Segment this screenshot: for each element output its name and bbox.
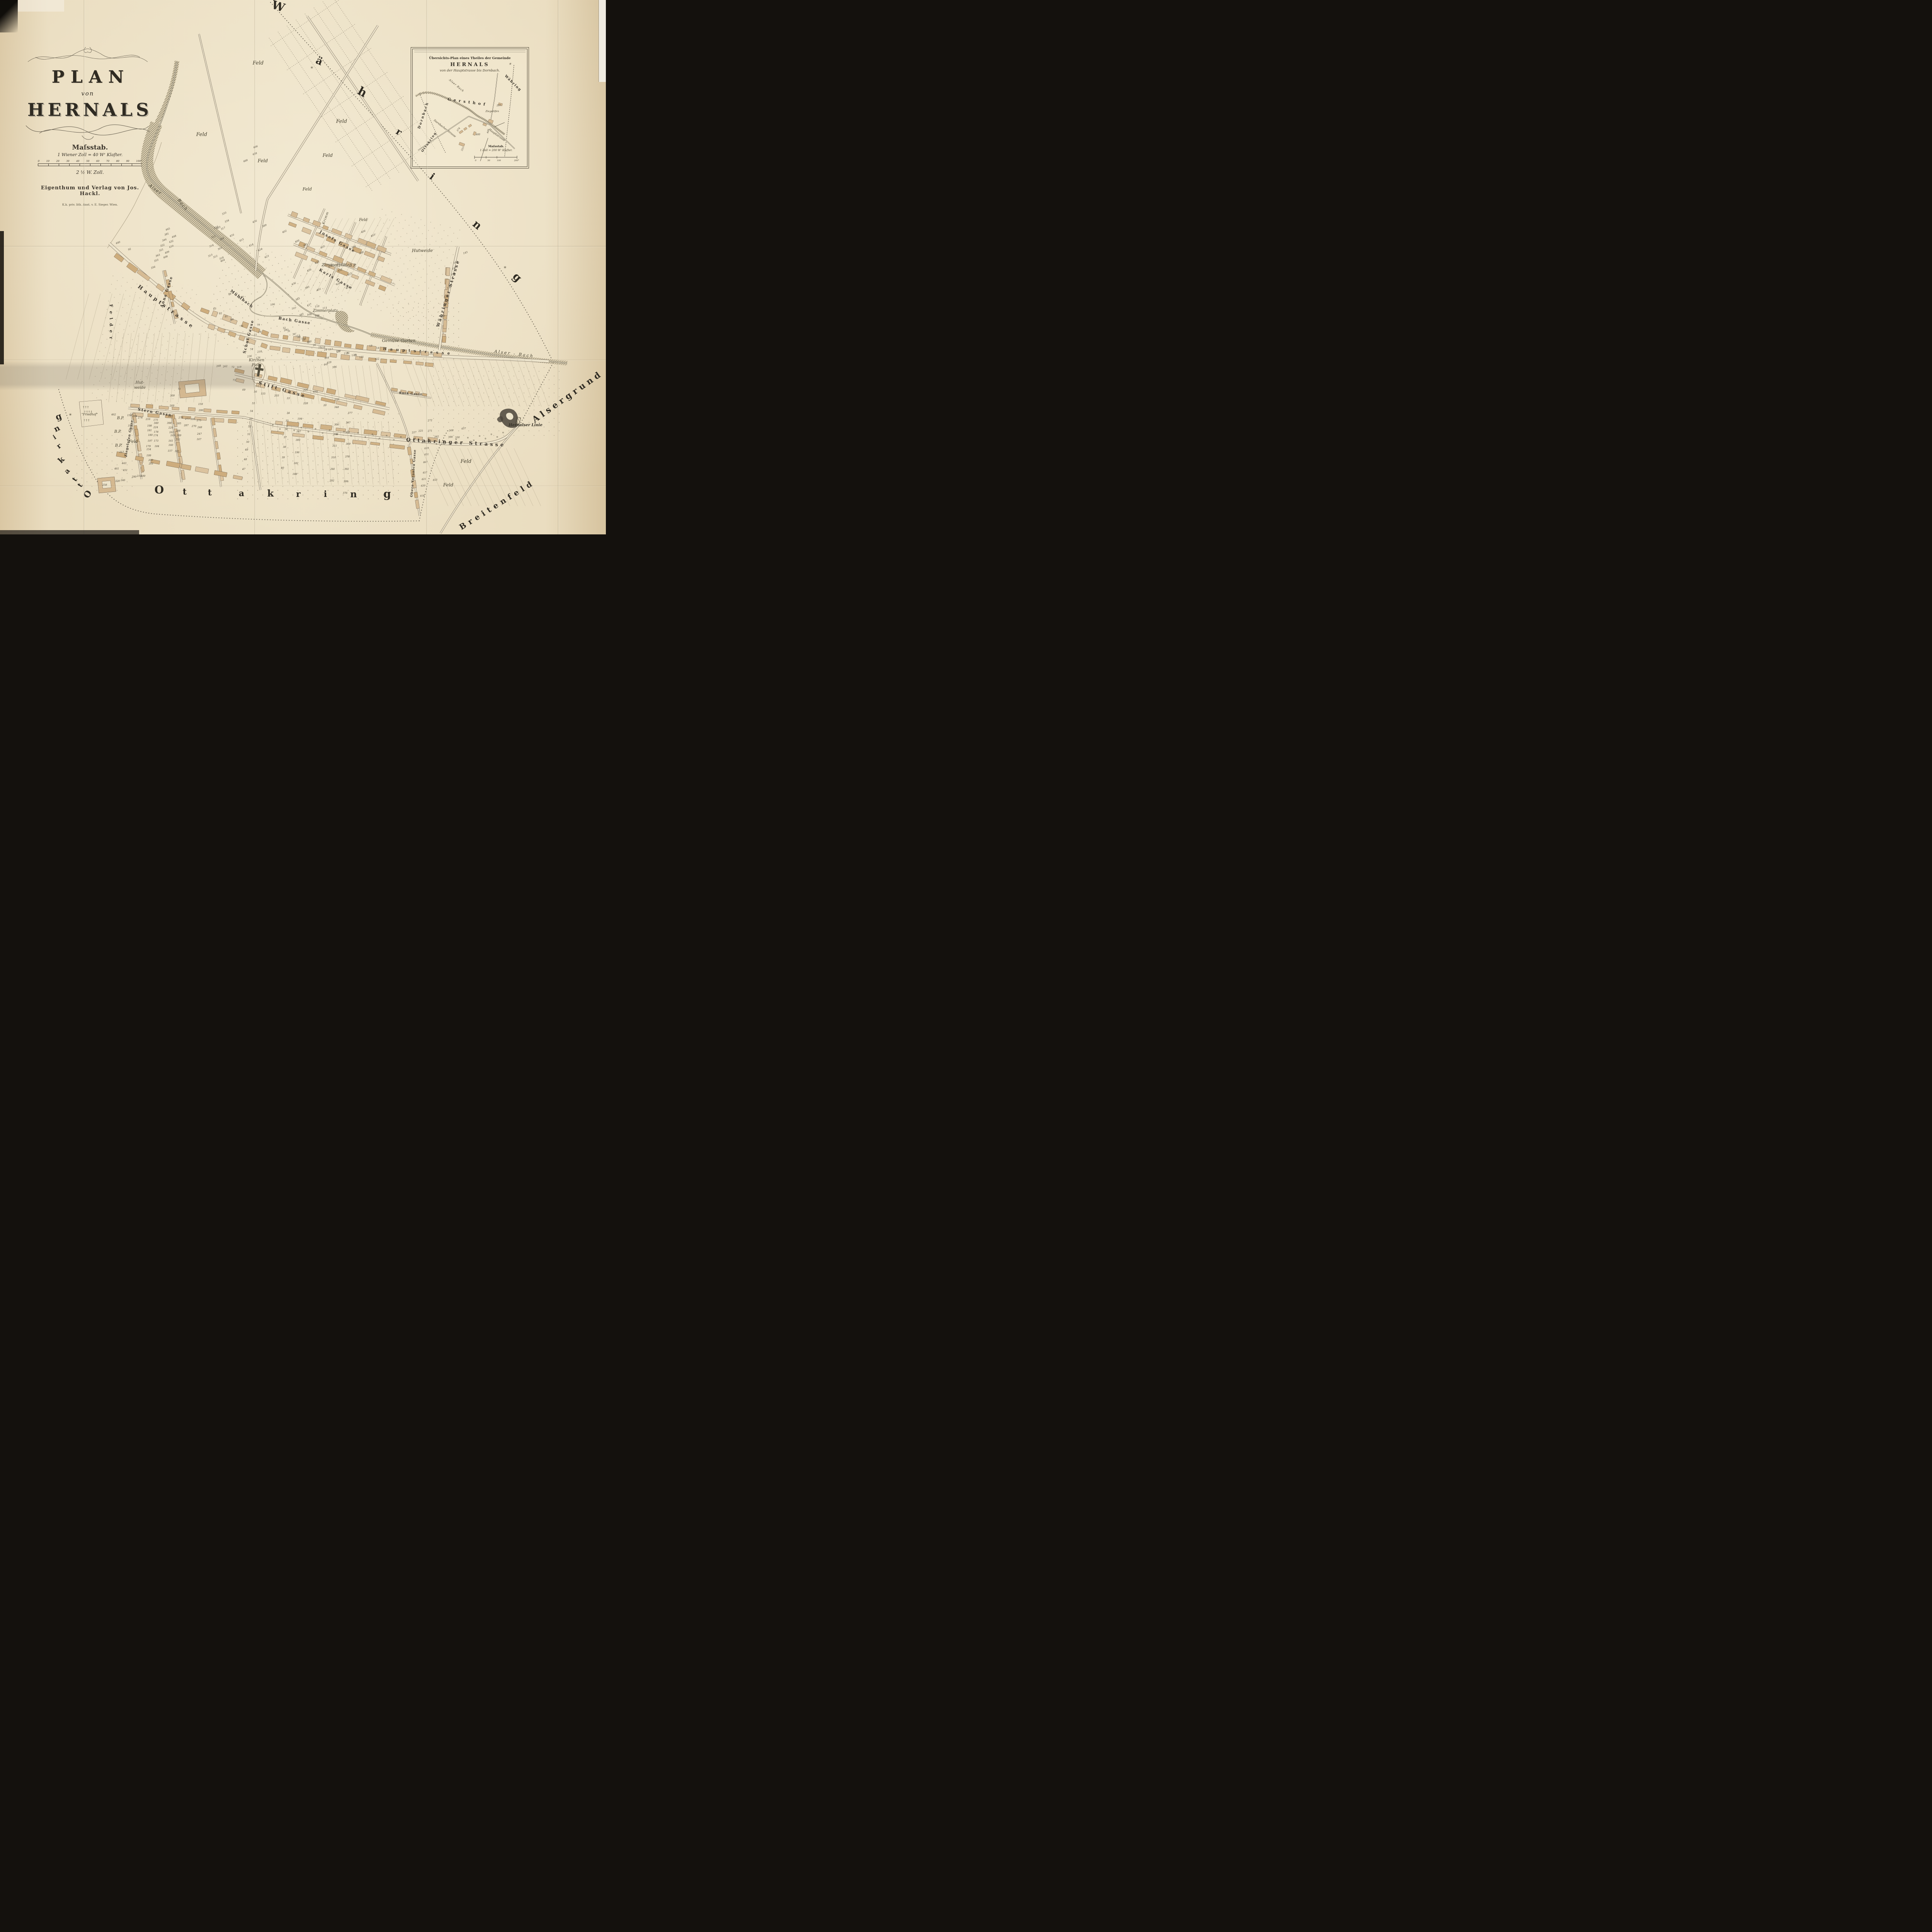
building: [181, 464, 191, 470]
parcel-number: 284: [132, 415, 137, 418]
map-label: t: [183, 487, 187, 497]
scale-under: 2 ½ W. Zoll.: [34, 170, 146, 175]
map-label: Feld: [257, 158, 268, 163]
inset-label: Dornbach: [417, 101, 430, 129]
building: [351, 274, 359, 279]
parcel-number: 400: [294, 239, 300, 244]
map-label: n: [470, 218, 485, 232]
map-label: Feld: [322, 153, 333, 158]
building: [131, 404, 140, 407]
parcel-number: 399: [344, 480, 348, 483]
parcel-number: 121: [359, 355, 364, 359]
parcel-number: 377: [348, 412, 352, 415]
parcel-number: 408: [163, 255, 168, 259]
parcel-number: 117: [328, 348, 333, 351]
building: [354, 405, 362, 410]
map-label: † † † †: [84, 410, 92, 413]
parcel-line: [66, 294, 89, 379]
parcel-number: 468: [243, 159, 248, 163]
parcel-number: 159: [198, 403, 203, 406]
parcel-number: 289: [176, 434, 181, 437]
parcel-number: 270: [191, 425, 196, 428]
parcel-number: 216: [145, 418, 150, 421]
parcel-number: 198: [147, 425, 152, 427]
parcel-number: 462: [111, 413, 116, 416]
parcel-number: 271: [427, 429, 433, 432]
parcel-number: 272: [427, 419, 433, 422]
map-label: B.P.: [349, 264, 356, 268]
parcel-number: 448: [171, 235, 177, 239]
parcel-number: 285: [176, 422, 181, 425]
parcel-line: [328, 366, 333, 404]
parcel-number: 202: [175, 439, 180, 441]
building: [214, 470, 227, 477]
parcel-number: 81: [224, 315, 228, 318]
building: [315, 338, 321, 344]
parcel-number: 453: [432, 478, 438, 481]
map-label: a: [239, 488, 244, 498]
parcel-number: 122: [374, 357, 379, 361]
inset-label: Ziegelöfen: [485, 110, 499, 113]
scale-tick: 80: [116, 160, 119, 163]
parcel-number: 246: [120, 479, 125, 482]
building: [195, 467, 209, 474]
parcel-number: 326: [303, 389, 308, 391]
parcel-number: 292: [329, 480, 334, 482]
parcel-number: 39: [282, 456, 285, 459]
parcel-number: 330: [455, 436, 460, 439]
building: [341, 354, 350, 360]
map-label: r: [296, 489, 301, 499]
parcel-number: 77: [253, 333, 257, 337]
map-label: Hut-: [135, 381, 145, 385]
map-label: Zimmerplatz: [321, 262, 349, 267]
scale-tick: 40: [76, 160, 79, 163]
parcel-line: [209, 333, 216, 402]
publisher-line: Eigenthum und Verlag von Jos. Hackl.: [34, 185, 146, 197]
parcel-number: 53: [249, 418, 252, 420]
parcel-number: 33: [287, 397, 290, 400]
building: [407, 447, 412, 455]
parcel-number: 162: [169, 431, 174, 434]
parcel-number: 349: [154, 422, 158, 425]
parcel-number: 416: [229, 233, 235, 238]
parcel-number: 310: [331, 456, 336, 459]
parcel-line: [452, 448, 479, 506]
parcel-number: 184: [155, 445, 159, 448]
parcel-number: 288: [175, 430, 180, 432]
inset-map: Übersichts-Plan eines Theiles der Gemein…: [412, 49, 527, 167]
parcel-number: 319: [236, 366, 241, 369]
inset-label: Währing: [503, 74, 522, 92]
road: [267, 26, 378, 199]
building: [443, 320, 447, 329]
title-flourish-bottom: [24, 120, 151, 143]
parcel-number: 317: [220, 226, 226, 231]
parcel-number: 50: [246, 441, 249, 444]
map-label: k: [267, 488, 274, 499]
parcel-number: 363: [155, 253, 161, 258]
tree-symbol: [485, 438, 486, 439]
building: [425, 362, 434, 367]
parcel-number: 309: [170, 395, 175, 397]
parcel-number: 467: [423, 461, 428, 464]
parcel-number: 181: [147, 429, 152, 432]
building: [276, 421, 283, 425]
parcel-number: 322: [160, 243, 165, 248]
parcel-number: 187: [296, 430, 301, 433]
parcel-number: 381: [164, 232, 170, 236]
map-label: t: [208, 488, 212, 498]
parcel-number: 321: [159, 248, 164, 252]
parcel-number: 418: [420, 494, 425, 497]
parcel-number: 236: [247, 355, 252, 358]
map-label: i: [324, 489, 327, 499]
parcel-number: 300: [334, 423, 339, 426]
parcel-number: 299: [333, 433, 338, 436]
parcel-line: [475, 448, 502, 506]
scale-tick: 30: [66, 160, 69, 163]
parcel-number: 72: [231, 366, 235, 369]
parcel-number: 92: [128, 248, 132, 251]
building: [344, 344, 351, 348]
map-label: W: [270, 0, 287, 15]
scale-block: Maſsstab. 1 Wiener Zoll = 40 Wʳ Klafter.…: [34, 144, 146, 206]
inset-label: 0: [475, 160, 476, 162]
parcel-number: 76: [240, 325, 243, 328]
parcel-number: 262: [223, 365, 228, 368]
scale-tick: 90: [126, 160, 129, 163]
parcel-line: [444, 448, 471, 506]
parcel-number: 313: [207, 253, 213, 258]
parcel-line: [404, 359, 421, 406]
parcel-number: 178: [154, 431, 158, 434]
parcel-number: 342: [434, 435, 439, 438]
building: [321, 397, 336, 403]
map-label: Feld: [359, 218, 367, 222]
parcel-number: 218: [257, 350, 262, 353]
building: [325, 340, 331, 345]
parcel-number: 78: [258, 330, 262, 333]
parcel-number: 290: [131, 476, 136, 478]
parcel-number: 80: [230, 318, 234, 321]
building: [403, 361, 412, 364]
parcel-number: 203: [274, 395, 279, 397]
parcel-number: 225: [418, 429, 423, 432]
building: [204, 409, 211, 413]
parcel-number: 79: [257, 323, 260, 327]
map-label: Kirchen: [248, 358, 264, 362]
parcel-number: 161: [168, 440, 173, 442]
parcel-number: 32: [282, 327, 286, 330]
parcel-number: 217: [119, 451, 124, 454]
parcel-number: 23: [336, 350, 340, 353]
building: [268, 376, 277, 381]
building: [380, 359, 387, 363]
building: [442, 336, 446, 343]
parcel-number: 183: [296, 439, 300, 442]
inset-label: 50: [488, 160, 490, 162]
parcel-number: 248: [197, 426, 202, 429]
map-label: n: [350, 488, 357, 500]
inset-label: Dornbacher Strasse: [433, 119, 457, 138]
parcel-number: 443: [121, 462, 126, 465]
map-label: ✳: [69, 413, 72, 417]
inset-label: von der Hauptstrasse bis Dornbach.: [440, 69, 500, 73]
parcel-number: 37: [284, 436, 287, 439]
parcel-line: [468, 448, 495, 506]
parcel-number: 200: [148, 459, 153, 462]
scale-tick: 10: [46, 160, 49, 163]
building: [446, 268, 450, 276]
building: [306, 350, 315, 356]
scale-tick: 70: [106, 160, 109, 163]
parcel-number: 445: [165, 227, 171, 231]
inset-label: Alser Bach: [448, 78, 464, 93]
map-label: r: [394, 126, 404, 138]
printer-line: K.k. priv. lith. Anst. v. E. Sieger. Wie…: [34, 203, 146, 206]
building: [416, 362, 423, 365]
inset-label: ✳: [509, 62, 512, 66]
parcel-number: 356: [151, 265, 156, 270]
parcel-number: 34: [287, 412, 290, 415]
parcel-number: 197: [148, 440, 152, 442]
parcel-number: 173: [154, 440, 158, 442]
parcel-number: 182: [294, 462, 298, 465]
building: [327, 388, 336, 395]
parcel-number: 396: [332, 366, 337, 369]
map-label: a: [63, 467, 72, 476]
parcel-number: 333: [221, 211, 227, 216]
map-title-von: von: [24, 90, 151, 97]
parcel-number: 25: [318, 346, 321, 349]
map-label: † † †: [84, 419, 90, 422]
building: [159, 406, 168, 409]
parcel-number: 194: [298, 418, 302, 420]
map-label: r: [55, 442, 63, 451]
parcel-number: 369: [346, 443, 350, 446]
parcel-number: 328: [115, 480, 120, 483]
building: [280, 378, 292, 384]
building: [283, 335, 288, 339]
inset-labels: Übersichts-Plan eines Theiles der Gemein…: [417, 55, 522, 162]
map-label: n: [52, 423, 61, 434]
parcel-number: 461: [114, 468, 119, 470]
inset-label: 207: [496, 104, 501, 107]
parcel-number: 437: [461, 427, 466, 430]
road: [199, 34, 241, 213]
parcel-number: 370: [345, 456, 350, 458]
map-label: Kork Gasse: [399, 391, 423, 396]
map-label: Feld: [252, 60, 264, 66]
parcel-number: 353: [154, 259, 159, 263]
parcel-number: 30: [292, 333, 296, 336]
map-scan: 4563894024003934164154144244234654644054…: [0, 0, 606, 534]
parcel-number: 409: [164, 250, 170, 255]
map-label: ä: [314, 55, 325, 68]
parcel-number: 287: [184, 424, 189, 427]
parcel-number: 174: [153, 434, 158, 437]
map-label: k: [56, 454, 67, 465]
parcel-number: 143: [463, 251, 468, 255]
building: [391, 388, 398, 391]
building: [232, 411, 240, 414]
parcel-number: 420: [420, 484, 426, 487]
parcel-number: 29: [297, 335, 301, 338]
parcel-number: 392: [344, 468, 349, 471]
parcel-number: 258: [102, 484, 107, 486]
map-label: Hernalser Linie: [508, 423, 543, 427]
map-label: Feld: [336, 119, 347, 124]
parcel-number: 74: [250, 348, 253, 351]
parcel-number: 189: [141, 475, 145, 478]
building: [415, 500, 420, 509]
map-label: weide: [134, 386, 146, 390]
building: [282, 347, 290, 353]
building: [236, 378, 244, 383]
building: [334, 341, 342, 347]
parcel-number: 402: [282, 230, 287, 234]
parcel-number: 188: [293, 473, 297, 476]
parcel-number: 31: [287, 330, 291, 333]
parcel-number: 314: [209, 244, 214, 248]
building: [336, 401, 347, 406]
parcel-number: 227: [412, 431, 417, 434]
inset-label: Ottakring: [420, 131, 437, 153]
parcel-number: 308: [449, 429, 454, 432]
parcel-number: 38: [283, 446, 286, 449]
map-label: B.P.: [114, 430, 121, 434]
parcel-number: 69: [242, 389, 245, 391]
parcel-number: 228: [303, 402, 308, 405]
parcel-number: 167: [197, 438, 201, 441]
parcel-number: 348: [334, 406, 339, 409]
building: [188, 407, 196, 411]
parcel-number: 201: [148, 463, 153, 465]
title-block: PLAN von HERNALS: [24, 46, 151, 143]
parcel-number: 156: [127, 414, 132, 417]
parcel-number: 269: [169, 405, 174, 407]
parcel-number: 278: [178, 417, 183, 419]
map-label: Gemüse Garten: [382, 338, 415, 343]
parcel-number: 466: [253, 145, 259, 149]
parcel-number: 274: [138, 417, 143, 419]
building: [355, 344, 364, 349]
map-label: B.P.: [117, 416, 124, 420]
parcel-number: 229: [168, 427, 173, 429]
parcel-number: 247: [197, 433, 202, 435]
parcel-line: [369, 366, 375, 404]
building: [390, 359, 396, 363]
parcel-number: 40: [281, 467, 284, 469]
parcel-number: 82: [219, 312, 222, 315]
parcel-number: 48: [243, 458, 247, 461]
parcel-number: 18: [376, 347, 379, 350]
parcel-number: 451: [122, 469, 128, 472]
parcel-number: 339: [334, 398, 339, 401]
parcel-number: 376: [343, 492, 347, 495]
map-label: i: [428, 171, 437, 182]
parcel-number: 457: [422, 471, 428, 474]
inset-label: Maſsstab.: [488, 145, 504, 148]
parcel-number: 21: [354, 354, 357, 357]
parcel-number: 224: [153, 426, 158, 429]
scale-bar: 0102030405060708090100°: [38, 160, 142, 168]
parcel-number: 306: [190, 418, 195, 421]
parcel-number: 179: [146, 445, 151, 448]
map-label: i: [51, 434, 57, 441]
building: [422, 393, 427, 396]
parcel-number: 456: [252, 219, 258, 224]
map-title-plan: PLAN: [24, 67, 151, 87]
parcel-number: 421: [421, 478, 427, 481]
parcel-number: 344: [162, 238, 167, 242]
map-label: O: [155, 483, 164, 496]
map-label: Feld: [196, 132, 207, 138]
parcel-number: 154: [146, 448, 151, 451]
map-label: Feld: [460, 459, 471, 464]
parcel-number: 410: [168, 245, 174, 249]
parcel-number: 165: [175, 450, 179, 453]
building: [330, 353, 337, 358]
tree-symbol: [467, 437, 468, 438]
parcel-number: 431: [424, 453, 429, 456]
parcel-number: 405: [320, 245, 326, 250]
inset-label: 440: [486, 129, 490, 134]
parcel-number: 36: [285, 428, 288, 431]
inset-label: 100: [497, 160, 501, 162]
parcel-line: [429, 448, 456, 506]
scale-tick: 100°: [136, 160, 142, 163]
parcel-number: 368: [345, 431, 350, 434]
parcel-number: 27: [307, 341, 311, 344]
courtyard: [185, 383, 200, 393]
inset-label: Übersichts-Plan eines Theiles der Gemein…: [429, 55, 511, 60]
map-label: Feld: [443, 482, 454, 488]
parcel-number: 52: [248, 425, 251, 428]
building: [228, 419, 236, 423]
parcel-number: 277: [185, 418, 190, 420]
parcel-number: 47: [242, 468, 245, 471]
map-label: Feld: [302, 187, 312, 192]
parcel-number: 20: [323, 404, 327, 407]
parcel-number: 432: [168, 240, 174, 244]
inset-svg: Übersichts-Plan eines Theiles der Gemein…: [413, 49, 527, 167]
parcel-number: 406: [361, 230, 366, 234]
parcel-number: 334: [224, 219, 230, 223]
scale-bar-line: [38, 163, 142, 166]
scale-tick-labels: 0102030405060708090100°: [38, 160, 142, 163]
building: [135, 456, 144, 461]
parcel-number: 26: [312, 344, 316, 347]
map-label: g: [54, 411, 63, 423]
parcel-number: 71: [178, 388, 181, 391]
parcel-number: 35: [286, 420, 289, 422]
scale-tick: 20: [56, 160, 60, 163]
parcel-number: 196: [295, 451, 299, 454]
inset-label: 551: [461, 146, 465, 151]
parcel-line: [421, 448, 448, 506]
parcel-number: 180: [148, 434, 153, 437]
parcel-number: 24: [323, 348, 327, 351]
parcel-number: 312: [213, 255, 218, 259]
parcel-number: 19: [369, 344, 372, 347]
scale-heading: Maſsstab.: [34, 144, 146, 151]
parcel-number: 175: [153, 419, 158, 422]
parcel-line: [437, 448, 464, 506]
parcel-number: 28: [302, 338, 306, 341]
parcel-number: 206: [198, 409, 203, 412]
